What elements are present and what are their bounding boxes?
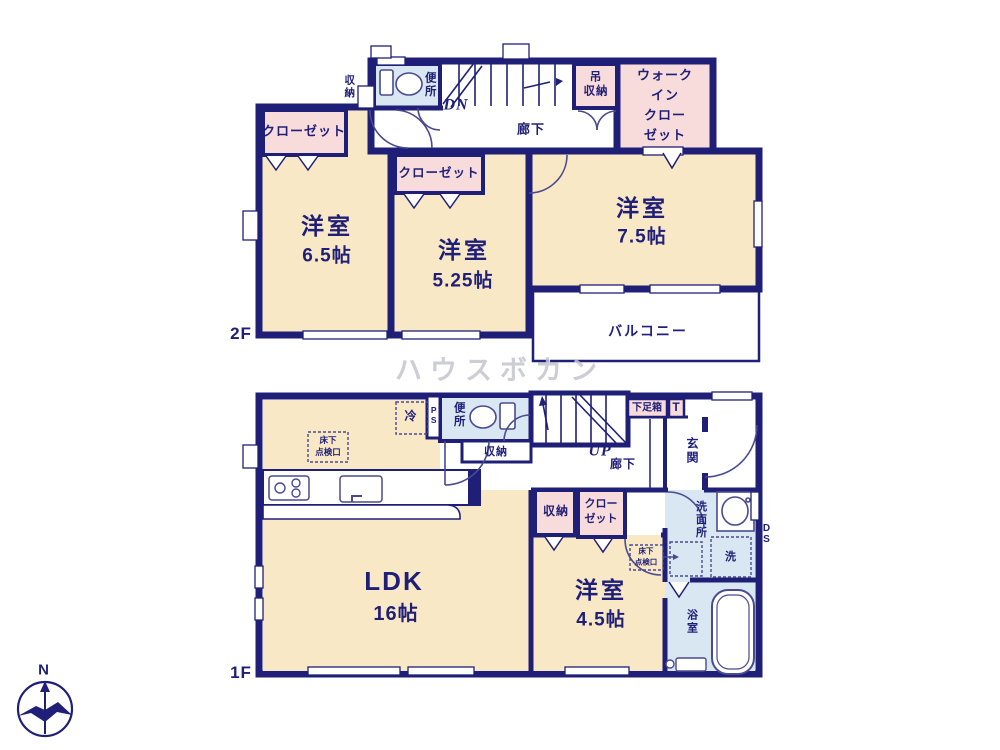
hanging-storage-label: 吊 収納 [584,71,609,100]
duct-space-label: DS [761,523,771,545]
floor-plan-canvas: クローゼット 洋室 6.5帖 クローゼット 洋室 5.25帖 洋室 7.5帖 収… [0,0,1000,750]
kitchen-sink [340,476,382,502]
floor-hatch-kitchen-label: 床下 点検口 [315,435,341,459]
room-4-5-name: 洋室 [575,576,627,606]
room-5-25-name: 洋室 [438,236,490,266]
vanity-sink [717,492,754,531]
washroom-label: 洗面所 [695,501,706,540]
floor2-label: 2F [230,323,252,345]
floor1-label: 1F [230,662,252,684]
toilet-2f-label: 便所 [423,72,435,99]
closet-west-label: クローゼット [262,124,346,141]
bathroom-label: 浴室 [686,609,697,635]
hallway-1f-label: 廊下 [610,457,636,473]
closet-1f-label: クロー ゼット [585,497,618,527]
room-6-5-size: 6.5帖 [302,245,351,270]
floor-hatch-wash-label: 床下 点検口 [635,547,658,568]
hallway-2f-label: 廊下 [517,122,545,139]
watermark: ハウスボカン [395,353,605,388]
closet-middle-label: クローゼット [398,165,479,181]
pipe-space-label: PS [429,405,438,425]
kitchen-counter [263,470,480,519]
ldk-size: 16帖 [373,601,418,627]
stairs-dn-label: DN [443,96,468,117]
bathtub [712,590,754,674]
room-5-25-size: 5.25帖 [433,270,494,295]
walk-in-closet-label: ウォーク イン クロー ゼット [637,66,693,147]
compass-north-label: N [38,660,50,680]
shoe-box-label: 下足箱 [632,402,662,415]
ldk-name: LDK [364,565,423,599]
t-box-label: T [672,400,680,416]
toilet-1f-label: 便所 [452,402,464,429]
storage-1f-label: 収納 [543,504,569,520]
room-7-5-size: 7.5帖 [617,226,666,251]
room-7-5-name: 洋室 [616,194,668,224]
storage-2f-label: 収納 [344,75,355,100]
washer-label: 洗 [725,550,737,564]
room-6-5-name: 洋室 [301,212,353,242]
refrigerator-label: 冷 [404,409,417,425]
stairs-up-label: UP [588,442,611,463]
room-4-5-size: 4.5帖 [576,609,625,634]
hall-storage-label: 収納 [484,445,508,459]
balcony-label: バルコニー [608,322,688,340]
compass [18,681,72,736]
entrance-label: 玄関 [686,437,698,465]
